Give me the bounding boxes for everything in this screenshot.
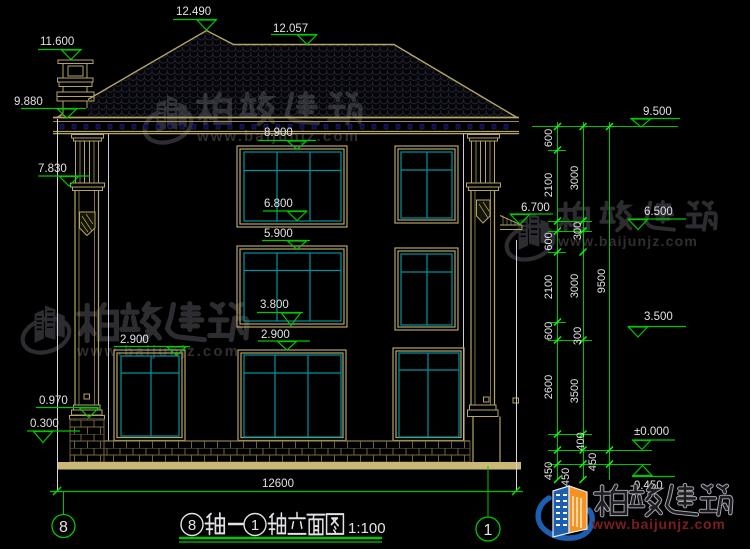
svg-text:3500: 3500 bbox=[569, 379, 581, 403]
svg-text:300: 300 bbox=[572, 222, 584, 240]
svg-text:8.900: 8.900 bbox=[264, 127, 293, 139]
svg-text:8: 8 bbox=[188, 517, 196, 534]
svg-text:3000: 3000 bbox=[569, 274, 581, 298]
svg-text:2.900: 2.900 bbox=[120, 334, 149, 346]
svg-text:2100: 2100 bbox=[543, 275, 555, 299]
svg-text:11.600: 11.600 bbox=[40, 36, 74, 48]
svg-text:6.800: 6.800 bbox=[264, 198, 293, 210]
svg-text:600: 600 bbox=[543, 129, 555, 147]
svg-text:2600: 2600 bbox=[543, 375, 555, 399]
svg-text:600: 600 bbox=[543, 322, 555, 340]
svg-text:www.baijunjz.com: www.baijunjz.com bbox=[591, 516, 726, 532]
svg-text:www.baijunjz.com: www.baijunjz.com bbox=[76, 343, 240, 360]
svg-text:12.490: 12.490 bbox=[176, 6, 211, 18]
svg-text:±0.000: ±0.000 bbox=[634, 426, 669, 438]
svg-text:1: 1 bbox=[251, 517, 259, 534]
svg-text:6.500: 6.500 bbox=[644, 206, 673, 218]
svg-text:2100: 2100 bbox=[543, 173, 555, 197]
svg-text:12600: 12600 bbox=[262, 478, 294, 490]
svg-text:600: 600 bbox=[543, 232, 555, 250]
svg-text:300: 300 bbox=[572, 327, 584, 345]
svg-text:12.057: 12.057 bbox=[273, 23, 308, 35]
svg-text:7.830: 7.830 bbox=[38, 163, 67, 175]
svg-text:0.970: 0.970 bbox=[39, 395, 68, 407]
svg-text:3.800: 3.800 bbox=[260, 299, 289, 311]
svg-text:1: 1 bbox=[484, 522, 493, 539]
svg-text:3000: 3000 bbox=[569, 166, 581, 190]
svg-text:400: 400 bbox=[575, 432, 587, 450]
svg-text:450: 450 bbox=[560, 468, 572, 486]
svg-text:450: 450 bbox=[543, 462, 555, 480]
svg-text:9.500: 9.500 bbox=[643, 106, 672, 118]
svg-text:2.900: 2.900 bbox=[261, 329, 290, 341]
svg-text:3.500: 3.500 bbox=[644, 311, 673, 323]
svg-text:0.300: 0.300 bbox=[30, 418, 59, 430]
svg-text:5.900: 5.900 bbox=[264, 228, 293, 240]
svg-text:6.700: 6.700 bbox=[521, 202, 550, 214]
svg-text:8: 8 bbox=[59, 519, 68, 536]
svg-text:450: 450 bbox=[587, 453, 599, 471]
svg-text:9500: 9500 bbox=[596, 269, 608, 293]
svg-text:1:100: 1:100 bbox=[348, 520, 386, 537]
svg-text:9.880: 9.880 bbox=[14, 96, 43, 108]
